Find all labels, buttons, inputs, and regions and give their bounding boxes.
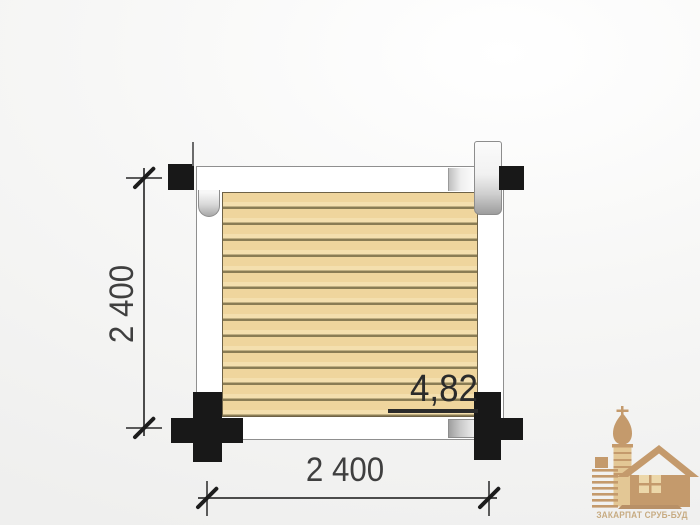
top-left-log-end <box>198 190 220 217</box>
company-logo: ЗАКАРПАТ СРУБ-БУД <box>584 401 700 525</box>
company-name-label: ЗАКАРПАТ СРУБ-БУД <box>586 510 698 520</box>
room-area-underline <box>388 409 478 413</box>
logo-dome-icon <box>613 413 632 445</box>
dimension-line-horizontal <box>198 497 497 499</box>
width-dimension-label: 2 400 <box>289 452 401 488</box>
bottom-left-corner-joint-arm <box>171 418 243 443</box>
blueprint-canvas: 2 400 2 400 4,82 <box>0 0 700 525</box>
extension-line <box>192 142 194 166</box>
height-dimension-label: 2 400 <box>104 248 140 360</box>
bottom-right-corner-joint <box>474 392 501 460</box>
top-right-corner-joint <box>499 166 524 190</box>
bottom-right-log-end <box>448 419 475 438</box>
top-right-log-end <box>474 141 502 215</box>
dimension-line-vertical <box>143 168 145 436</box>
logo-church-house-icon <box>584 401 700 509</box>
top-beam-log-end <box>448 168 475 191</box>
top-left-corner-joint <box>168 164 194 190</box>
bottom-right-corner-joint-arm <box>499 418 523 440</box>
room-area-label: 4,82 <box>393 370 478 408</box>
logo-annex-icon <box>595 457 608 468</box>
